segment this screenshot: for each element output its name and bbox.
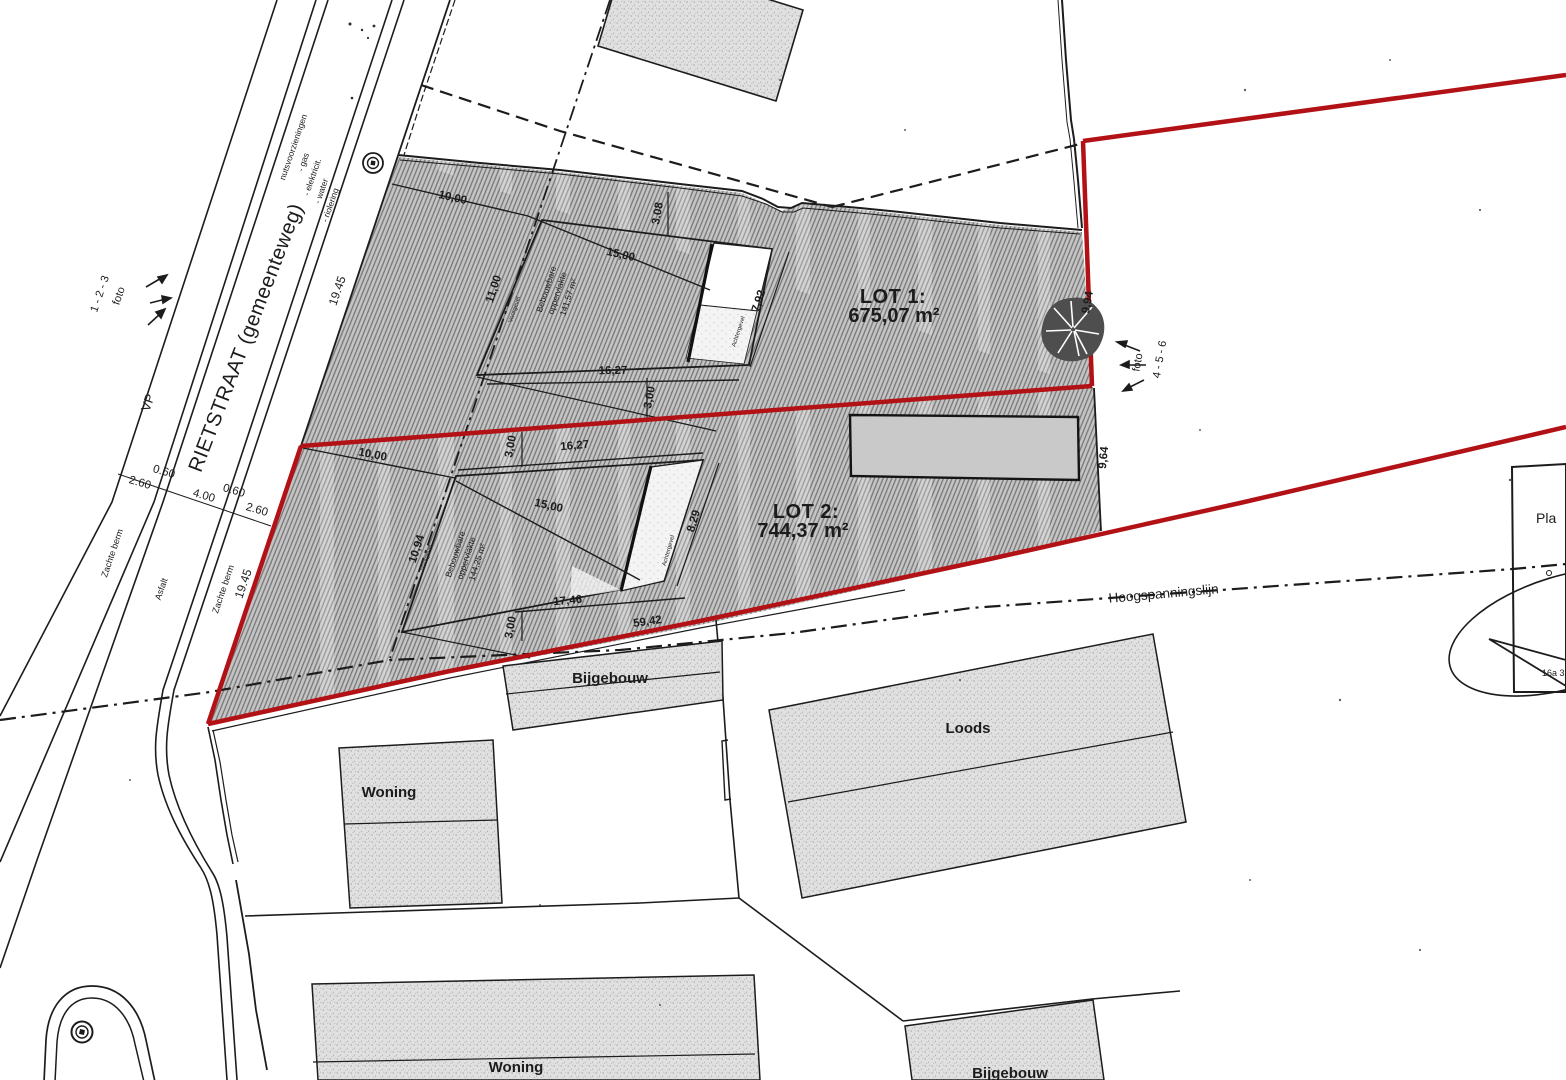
svg-text:744,37 m²: 744,37 m²	[757, 520, 849, 542]
svg-text:16,27: 16,27	[560, 439, 590, 453]
svg-text:17,46: 17,46	[553, 594, 583, 608]
svg-text:Bijgebouw: Bijgebouw	[972, 1065, 1048, 1080]
svg-text:675,07 m²: 675,07 m²	[848, 305, 940, 327]
svg-text:Woning: Woning	[362, 784, 417, 801]
svg-text:Pla: Pla	[1536, 510, 1556, 526]
svg-text:16,27: 16,27	[598, 365, 627, 378]
svg-text:Loods: Loods	[946, 720, 991, 737]
svg-text:Bijgebouw: Bijgebouw	[572, 670, 648, 687]
svg-text:9,64: 9,64	[1097, 445, 1111, 469]
svg-text:Woning: Woning	[489, 1059, 544, 1076]
svg-text:16a 3: 16a 3	[1542, 668, 1565, 678]
